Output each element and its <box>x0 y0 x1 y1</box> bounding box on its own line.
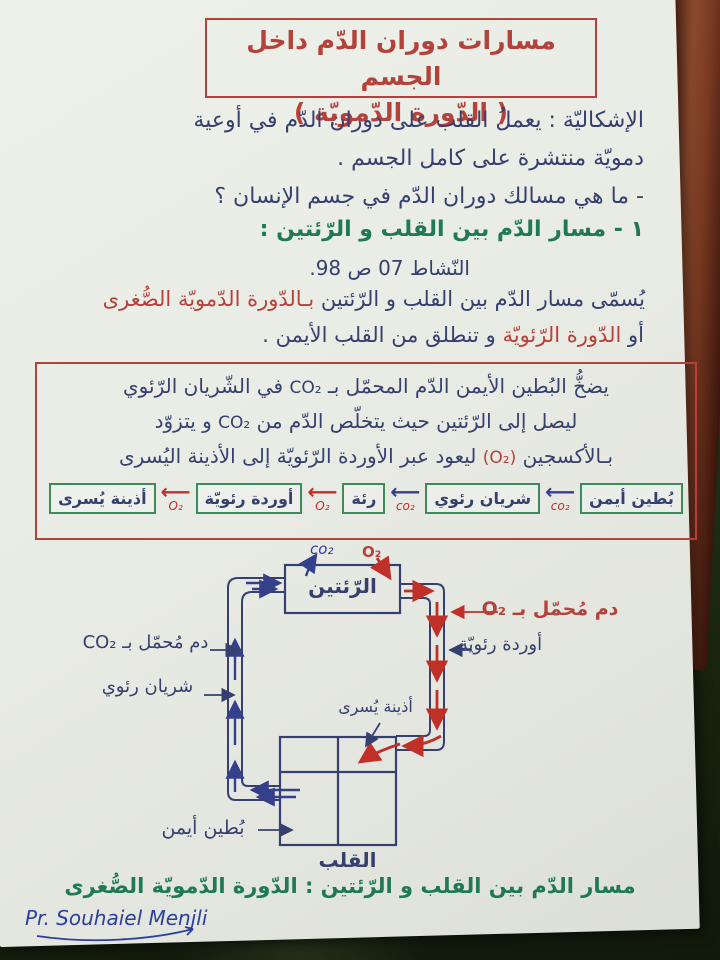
left-atrium-label: أذينة يُسرى <box>328 697 423 716</box>
arrow-label-co2: co₂ <box>551 500 570 513</box>
def-l3a: بـالأكسجين <box>523 444 613 468</box>
right-ventricle-label: بُطين أيمن <box>146 817 260 839</box>
flow-arrow-co2-1: ⟵ co₂ <box>540 485 580 513</box>
arrow-label-co2: co₂ <box>396 500 415 513</box>
definition-box: يضخُّ البُطين الأيمن الدّم المحمّل بـ CO… <box>35 362 697 540</box>
def-l3c: ليعود عبر الأوردة الرّئويّة إلى الأذينة … <box>119 444 476 468</box>
flow-box-lung: رئة <box>342 483 385 514</box>
pulmonary-artery-vessel <box>228 578 285 800</box>
definition-line2: ليصل إلى الرّئتين حيث يتخلّص الدّم من CO… <box>49 405 683 440</box>
co2-symbol: CO₂ <box>218 413 250 433</box>
naming-red-text: بـالدّورة الدّمويّة الصُّغرى <box>103 287 315 311</box>
flow-arrow-o2-1: ⟵ O₂ <box>302 485 342 513</box>
naming-dark-text: يُسمّى مسار الدّم بين القلب و الرّئتين <box>321 287 645 311</box>
signature-text: Pr. Souhaiel Menjli <box>25 906 207 930</box>
teacher-signature: Pr. Souhaiel Menjli <box>25 906 245 942</box>
flow-arrow-co2-2: ⟵ co₂ <box>385 485 425 513</box>
flow-box-pulmonary-artery: شريان رئوي <box>425 483 540 514</box>
flow-arrow-o2-2: ⟵ O₂ <box>156 485 196 513</box>
left-arrow-icon: ⟵ <box>307 485 337 500</box>
activity-reference: النّشاط 07 ص 98. <box>300 256 470 280</box>
photo-background: مسارات دوران الدّم داخل الجسم ( الدّورة … <box>0 0 720 960</box>
problem-line3: - ما هي مسالك دوران الدّم في جسم الإنسان… <box>30 178 644 216</box>
or-rest-text: و تنطلق من القلب الأيمن . <box>262 323 496 347</box>
problem-statement: الإشكاليّة : يعملُ القلب على دوران الدّم… <box>30 102 644 216</box>
alternate-name-line: أو الدّورة الرّئويّة و تنطلق من القلب ال… <box>30 323 644 347</box>
definition-line1: يضخُّ البُطين الأيمن الدّم المحمّل بـ CO… <box>49 370 683 405</box>
naming-line: يُسمّى مسار الدّم بين القلب و الرّئتين ب… <box>25 287 645 311</box>
o2-symbol: (O₂) <box>483 448 516 468</box>
pulmonary-circulation-red: الدّورة الرّئويّة <box>502 323 621 347</box>
or-word: أو <box>628 323 644 347</box>
problem-line1: الإشكاليّة : يعملُ القلب على دوران الدّم… <box>30 102 644 140</box>
co2-exhale-label: co₂ <box>310 540 333 558</box>
o2-inhale-label: O₂ <box>362 543 381 561</box>
deoxygenated-blood-label: دم مُحمّل بـ CO₂ <box>78 632 213 653</box>
flow-box-right-ventricle: بُطين أيمن <box>580 483 683 514</box>
section-heading: ١ - مسار الدّم بين القلب و الرّئتين : <box>250 217 644 242</box>
lungs-label: الرّئتين <box>285 574 400 598</box>
heart-label: القلب <box>295 848 400 872</box>
arrow-label-o2: O₂ <box>168 500 182 513</box>
def-l2c: و يتزوّد <box>155 409 212 433</box>
left-arrow-icon: ⟵ <box>545 485 575 500</box>
def-l2a: ليصل إلى الرّئتين حيث يتخلّص الدّم من <box>257 409 578 433</box>
arrow-label-o2: O₂ <box>315 500 329 513</box>
page-content: مسارات دوران الدّم داخل الجسم ( الدّورة … <box>0 0 720 960</box>
title-box: مسارات دوران الدّم داخل الجسم ( الدّورة … <box>205 18 597 98</box>
pulmonary-artery-label: شريان رئوي <box>90 676 205 697</box>
definition-line3: بـالأكسجين (O₂) ليعود عبر الأوردة الرّئو… <box>49 440 683 475</box>
co2-symbol: CO₂ <box>289 378 321 398</box>
def-l1c: في الشّريان الرّئوي <box>123 374 283 398</box>
def-l1a: يضخُّ البُطين الأيمن الدّم المحمّل بـ <box>328 374 609 398</box>
flow-box-left-atrium: أذينة يُسرى <box>49 483 155 514</box>
oxygenated-blood-label: دم مُحمّل بـ O₂ <box>460 598 640 620</box>
pulmonary-veins-label: أوردة رئويّة <box>438 634 563 655</box>
page-title-line1: مسارات دوران الدّم داخل الجسم <box>207 23 595 95</box>
flow-chart: بُطين أيمن ⟵ co₂ شريان رئوي ⟵ co₂ رئة ⟵ … <box>49 483 683 514</box>
flow-box-pulmonary-veins: أوردة رئويّة <box>196 483 303 514</box>
left-arrow-icon: ⟵ <box>161 485 191 500</box>
diagram-caption: مسار الدّم بين القلب و الرّئتين : الدّور… <box>40 874 660 898</box>
left-arrow-icon: ⟵ <box>390 485 420 500</box>
problem-line2: دمويّة منتشرة على كامل الجسم . <box>110 140 644 178</box>
